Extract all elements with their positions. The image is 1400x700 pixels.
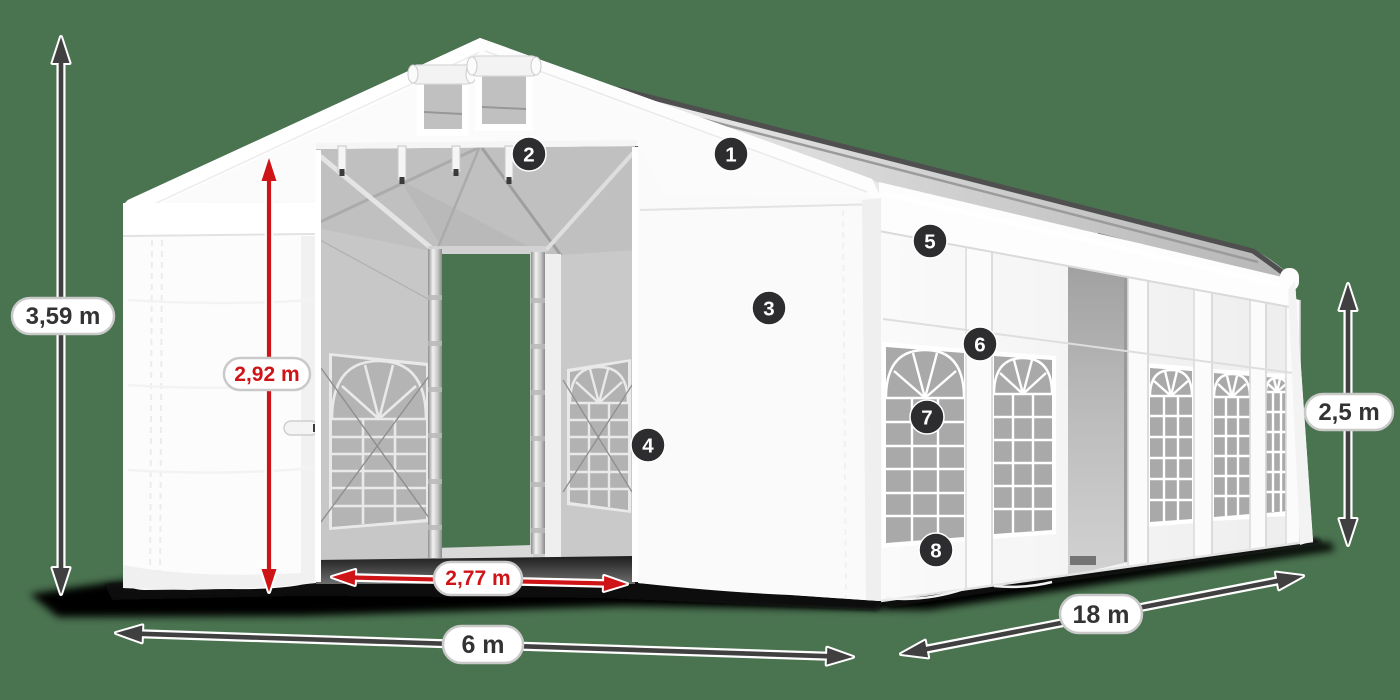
- svg-text:3: 3: [763, 297, 774, 320]
- svg-text:18 m: 18 m: [1073, 601, 1130, 629]
- svg-text:2,5 m: 2,5 m: [1318, 399, 1379, 426]
- svg-text:1: 1: [725, 143, 736, 166]
- svg-text:2: 2: [523, 143, 534, 166]
- svg-text:2,92 m: 2,92 m: [234, 363, 299, 386]
- svg-text:8: 8: [930, 539, 941, 562]
- svg-text:6: 6: [974, 333, 985, 356]
- svg-text:2,77 m: 2,77 m: [445, 567, 510, 590]
- svg-text:7: 7: [921, 406, 932, 429]
- svg-text:4: 4: [642, 434, 654, 457]
- svg-text:3,59 m: 3,59 m: [26, 303, 101, 330]
- svg-text:5: 5: [924, 230, 935, 253]
- svg-text:6 m: 6 m: [461, 631, 504, 659]
